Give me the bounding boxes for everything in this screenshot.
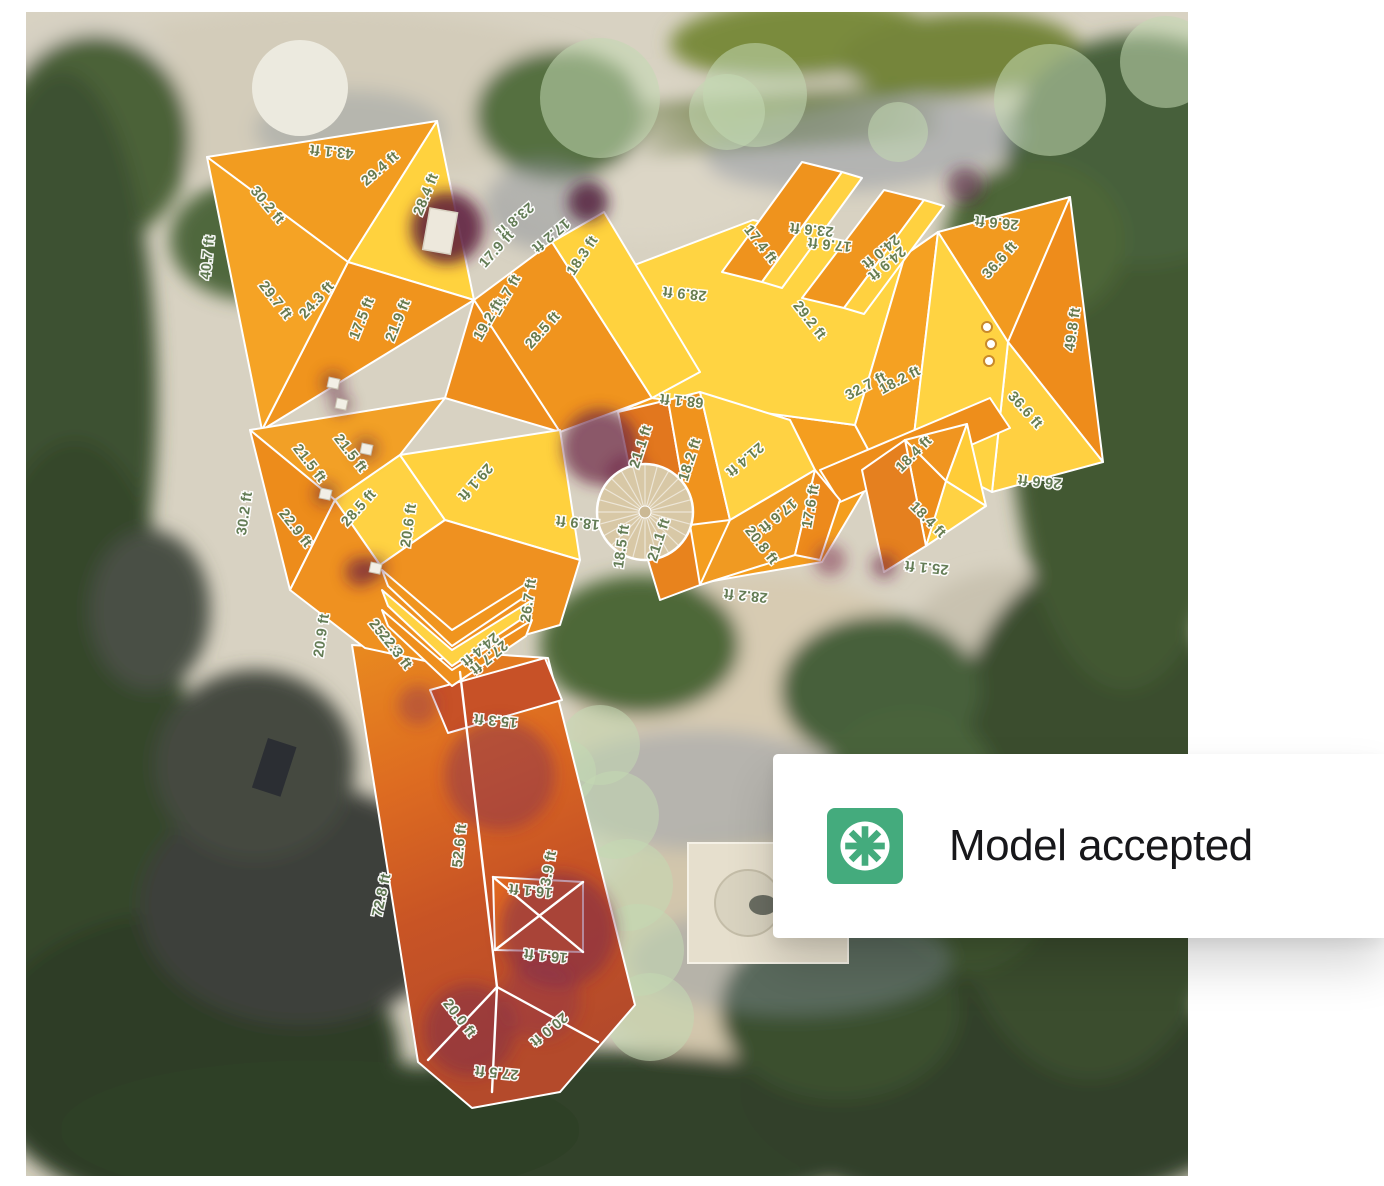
tree-marker: [1120, 16, 1212, 108]
app-canvas: 43.1 ft29.4 ft28.4 ft30.2 ft40.7 ft29.7 …: [0, 0, 1384, 1186]
roof-heat-shadow: [398, 685, 438, 725]
chimney: [327, 377, 340, 389]
toast-label: Model accepted: [949, 821, 1253, 871]
tree-marker: [868, 102, 928, 162]
chimney: [335, 398, 348, 410]
roof-heat-shadow: [814, 544, 846, 576]
canopy: [252, 40, 348, 136]
chimney: [369, 562, 382, 574]
gazebo-hub: [639, 506, 651, 518]
roof-vent: [986, 339, 996, 349]
tree-marker: [540, 38, 660, 158]
model-accepted-toast: Model accepted: [773, 754, 1384, 938]
roof-heat-shadow: [568, 182, 608, 222]
scenery-blob: [90, 530, 210, 690]
roof-vent: [984, 356, 994, 366]
roof-heat-shadow: [445, 720, 555, 830]
roof-heat-shadow: [947, 167, 983, 203]
scenery-blob: [155, 670, 355, 860]
roof-heat-shadow: [871, 553, 897, 579]
asterisk-spark-icon: [827, 808, 903, 884]
chimney: [360, 443, 373, 455]
tree-marker: [994, 44, 1106, 156]
chimney: [319, 488, 332, 500]
roof-vent: [982, 322, 992, 332]
tree-marker: [689, 74, 765, 150]
scene-svg[interactable]: 43.1 ft29.4 ft28.4 ft30.2 ft40.7 ft29.7 …: [0, 0, 1384, 1186]
scenery-blob: [540, 575, 740, 715]
